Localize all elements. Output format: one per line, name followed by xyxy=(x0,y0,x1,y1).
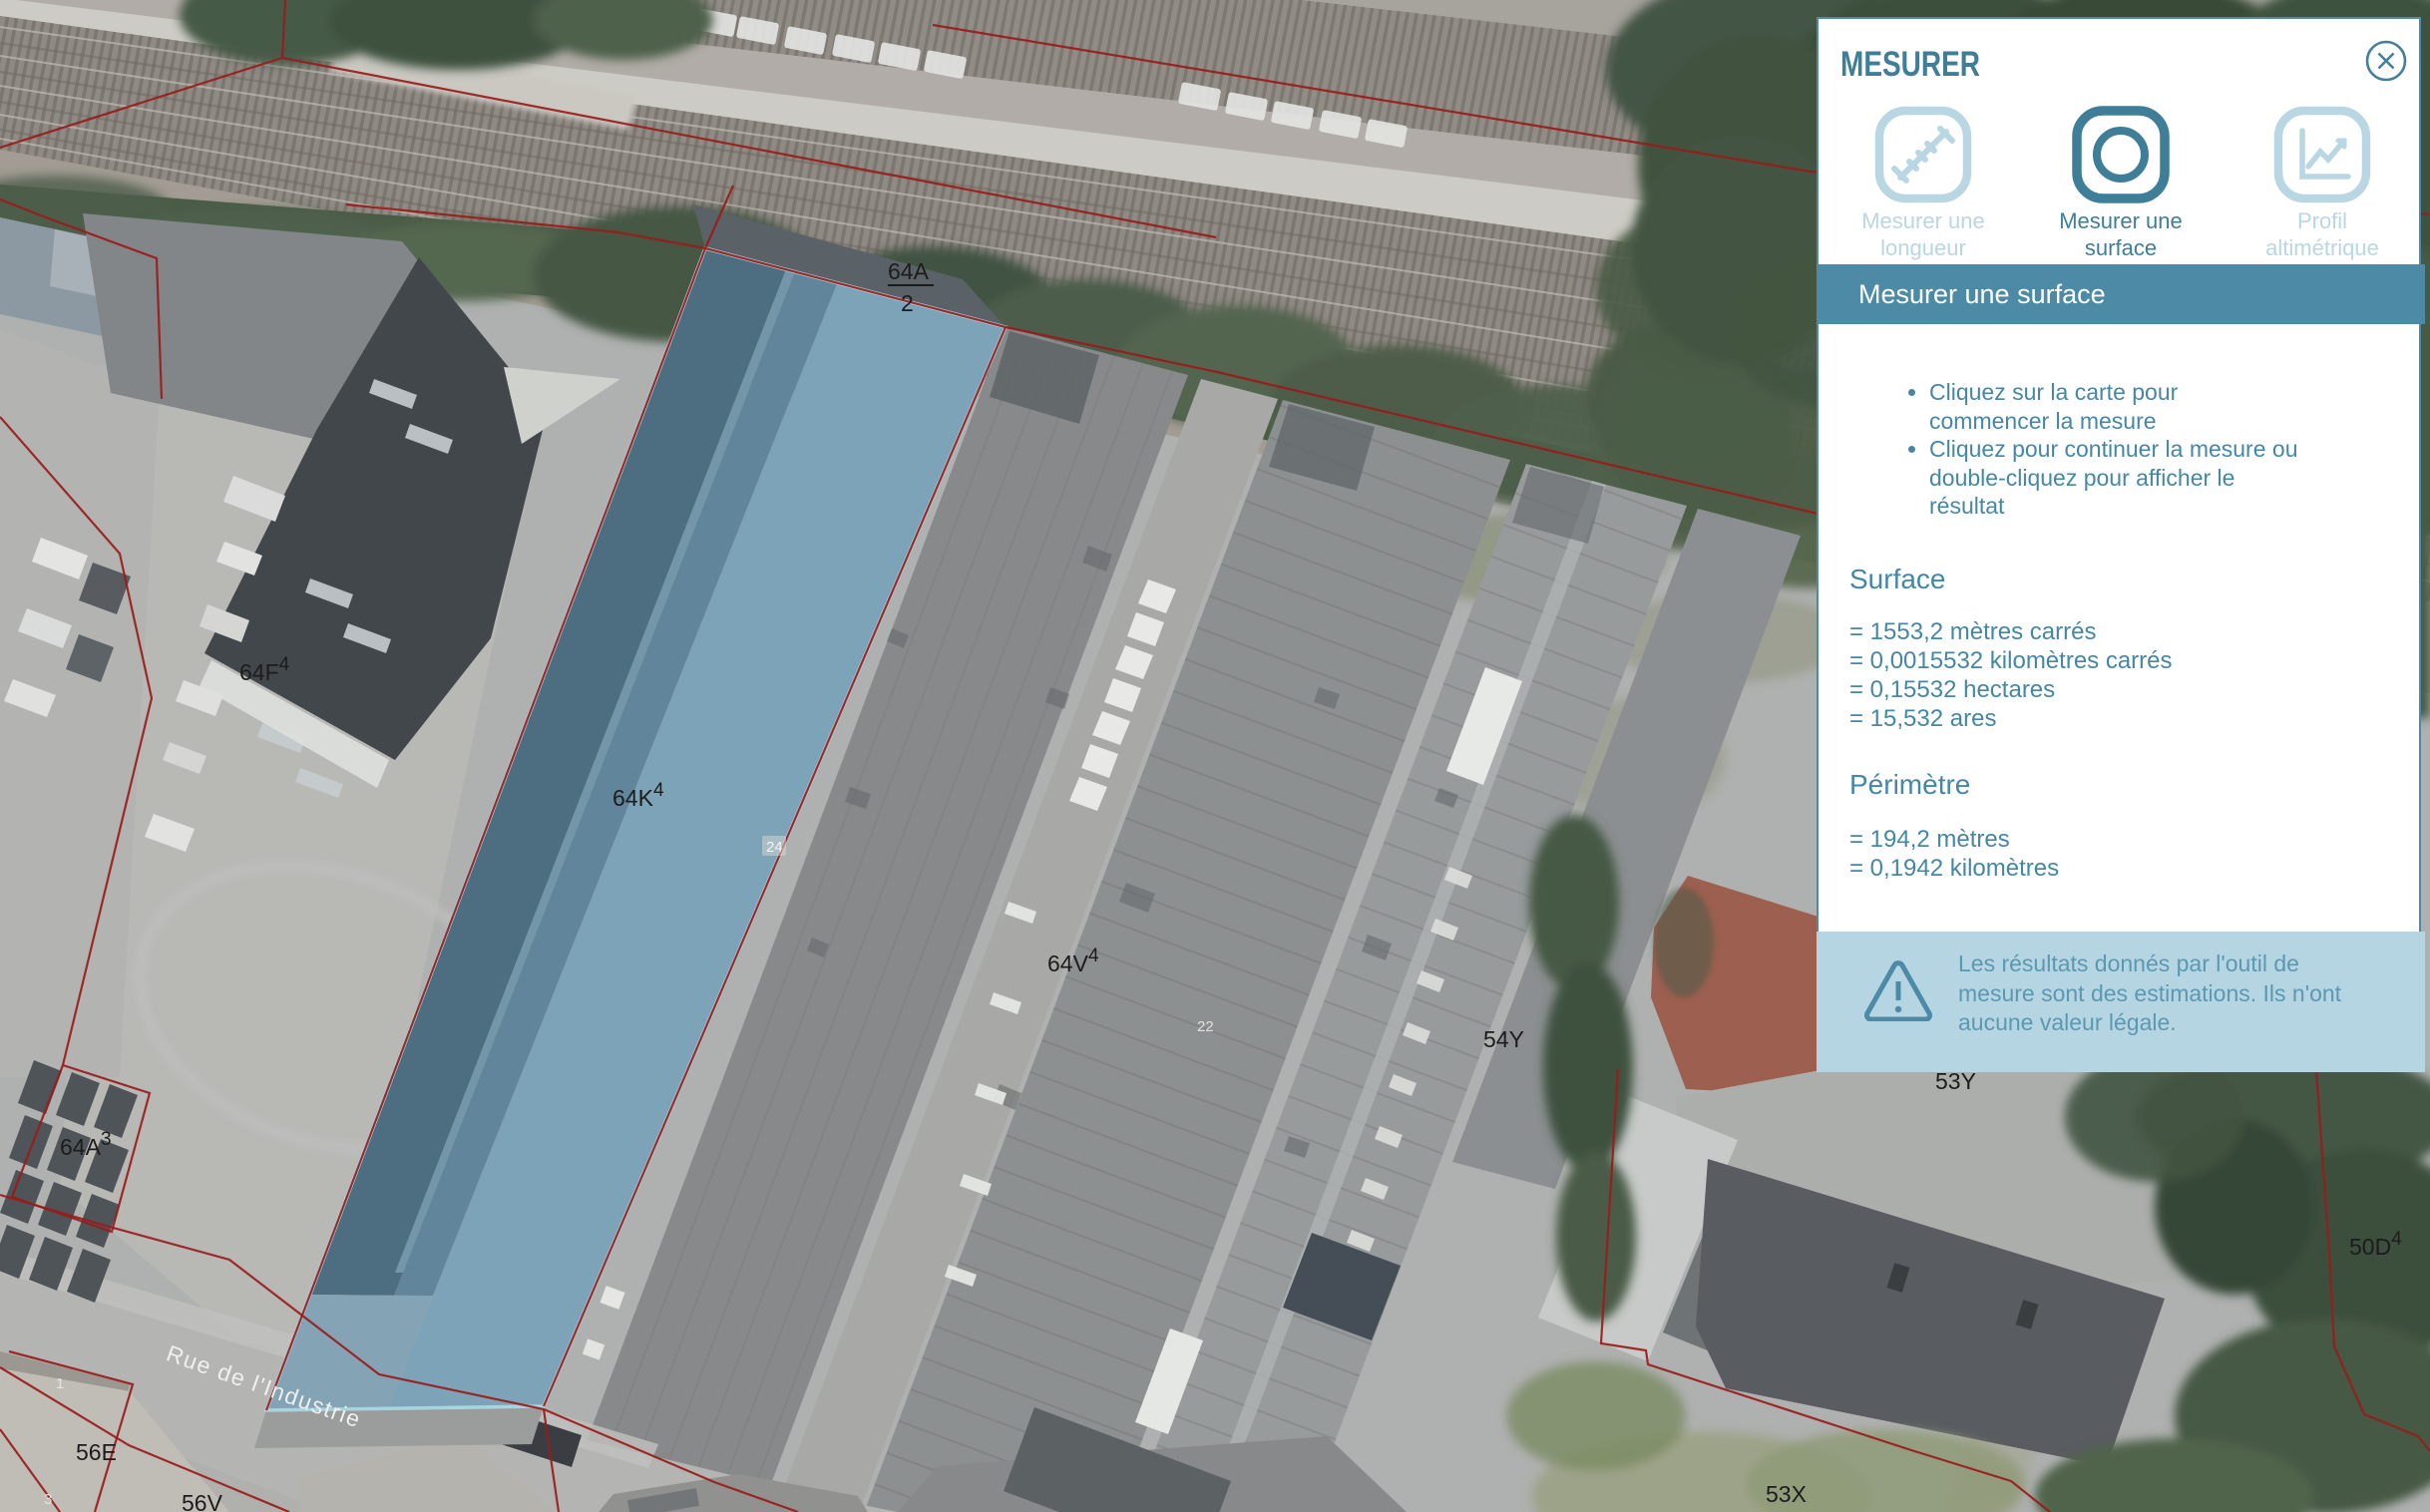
svg-text:2: 2 xyxy=(901,290,914,316)
svg-text:3: 3 xyxy=(44,1491,52,1508)
svg-text:22: 22 xyxy=(1197,1018,1214,1035)
svg-text:24: 24 xyxy=(766,839,783,856)
svg-text:56E: 56E xyxy=(76,1439,117,1465)
svg-text:56V: 56V xyxy=(182,1490,223,1512)
svg-text:1: 1 xyxy=(56,1375,64,1392)
svg-text:54Y: 54Y xyxy=(1483,1026,1524,1052)
svg-text:64A: 64A xyxy=(888,258,930,284)
svg-text:53X: 53X xyxy=(1766,1481,1807,1507)
